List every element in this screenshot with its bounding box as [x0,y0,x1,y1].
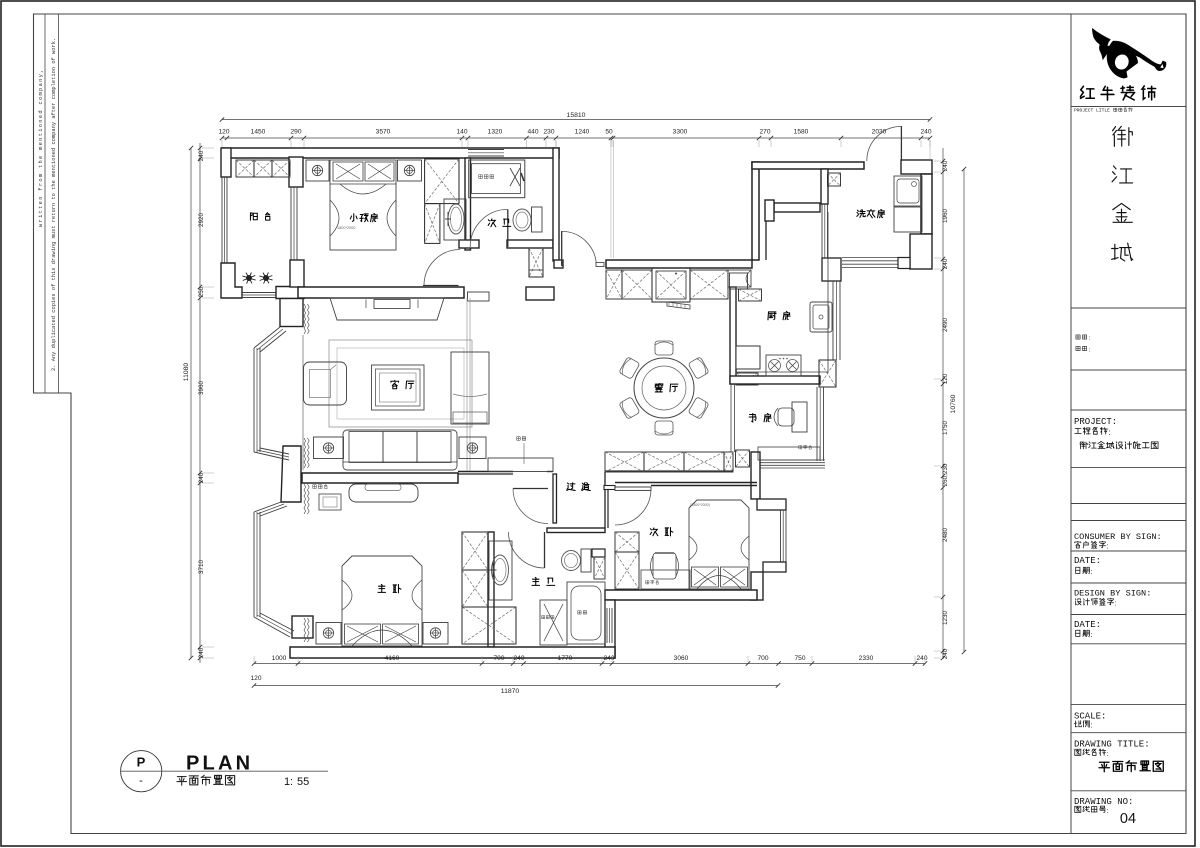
svg-text:2. Any duplicated copies of th: 2. Any duplicated copies of this drawing… [51,38,57,371]
svg-text:260,230: 260,230 [942,463,949,486]
svg-text::: : [1107,806,1109,815]
svg-text:PROJECT LITLE: PROJECT LITLE [1074,108,1110,114]
svg-text:440: 440 [527,129,538,136]
svg-text:04: 04 [1120,811,1136,827]
svg-text:1320: 1320 [488,129,503,136]
svg-text::: : [1107,542,1109,551]
svg-text:11870: 11870 [501,688,520,695]
svg-text:2030: 2030 [872,129,887,136]
svg-text:120: 120 [250,675,261,682]
svg-text::: : [1107,749,1109,758]
svg-text:1230: 1230 [942,611,949,626]
svg-text:P: P [137,755,146,770]
svg-text:1960: 1960 [942,209,949,224]
svg-text::: : [1091,721,1093,730]
svg-text:2330: 2330 [859,655,874,662]
svg-text::: : [1091,567,1093,576]
svg-text:1800*2000: 1800*2000 [337,226,355,230]
svg-text:50: 50 [605,129,613,136]
svg-text:250: 250 [198,286,205,297]
svg-text:55: 55 [297,776,309,788]
svg-text:DESIGN BY SIGN:: DESIGN BY SIGN: [1074,589,1151,599]
svg-text:written from the mentioned com: written from the mentioned company, [38,68,44,227]
svg-text:3960: 3960 [198,381,205,396]
svg-text:750: 750 [794,655,805,662]
svg-text:DATE:: DATE: [1074,620,1101,630]
svg-text:700: 700 [757,655,768,662]
svg-text:700: 700 [493,655,504,662]
svg-text::: : [1091,630,1093,639]
svg-text:2480: 2480 [942,528,949,543]
svg-text:DRAWING TITLE:: DRAWING TITLE: [1074,740,1150,750]
svg-text:3300: 3300 [673,129,688,136]
svg-text:(1500*2000): (1500*2000) [690,503,710,507]
svg-text:240: 240 [942,648,949,659]
svg-text::: : [290,776,293,788]
svg-text:2920: 2920 [198,213,205,228]
svg-text:-: - [139,775,143,787]
svg-text:DRAWING NO:: DRAWING NO: [1074,797,1133,807]
svg-text:1770: 1770 [558,655,573,662]
svg-text:4160: 4160 [385,655,400,662]
svg-text:240: 240 [920,129,931,136]
svg-text:1750: 1750 [942,421,949,436]
svg-text:120: 120 [218,129,229,136]
svg-text:11080: 11080 [183,363,190,382]
svg-text:DATE:: DATE: [1074,556,1101,566]
svg-text::: : [1109,428,1111,437]
svg-text:270: 270 [759,129,770,136]
svg-text:3570: 3570 [376,129,391,136]
svg-text:1580: 1580 [794,129,809,136]
svg-text:2490: 2490 [942,318,949,333]
svg-text:240: 240 [198,150,205,161]
svg-text:1000: 1000 [272,655,287,662]
svg-text:240: 240 [198,472,205,483]
svg-text:240: 240 [513,655,524,662]
svg-text:3060: 3060 [674,655,689,662]
svg-text:140: 140 [456,129,467,136]
svg-text:15810: 15810 [567,112,586,119]
svg-text:120: 120 [942,373,949,384]
svg-text:1240: 1240 [575,129,590,136]
svg-text:10760: 10760 [950,394,957,413]
svg-text:240: 240 [916,655,927,662]
svg-text:240: 240 [198,647,205,658]
svg-text:CONSUMER BY SIGN:: CONSUMER BY SIGN: [1074,532,1162,542]
svg-text:240: 240 [603,655,614,662]
svg-text:230: 230 [543,129,554,136]
svg-text:PLAN: PLAN [186,753,253,775]
svg-text::: : [1115,599,1117,608]
svg-text:1450: 1450 [251,129,266,136]
svg-text:240: 240 [942,258,949,269]
svg-text:240: 240 [942,160,949,171]
svg-text:3710: 3710 [198,560,205,575]
svg-text:290: 290 [290,129,301,136]
svg-text:PROJECT:: PROJECT: [1074,417,1117,427]
